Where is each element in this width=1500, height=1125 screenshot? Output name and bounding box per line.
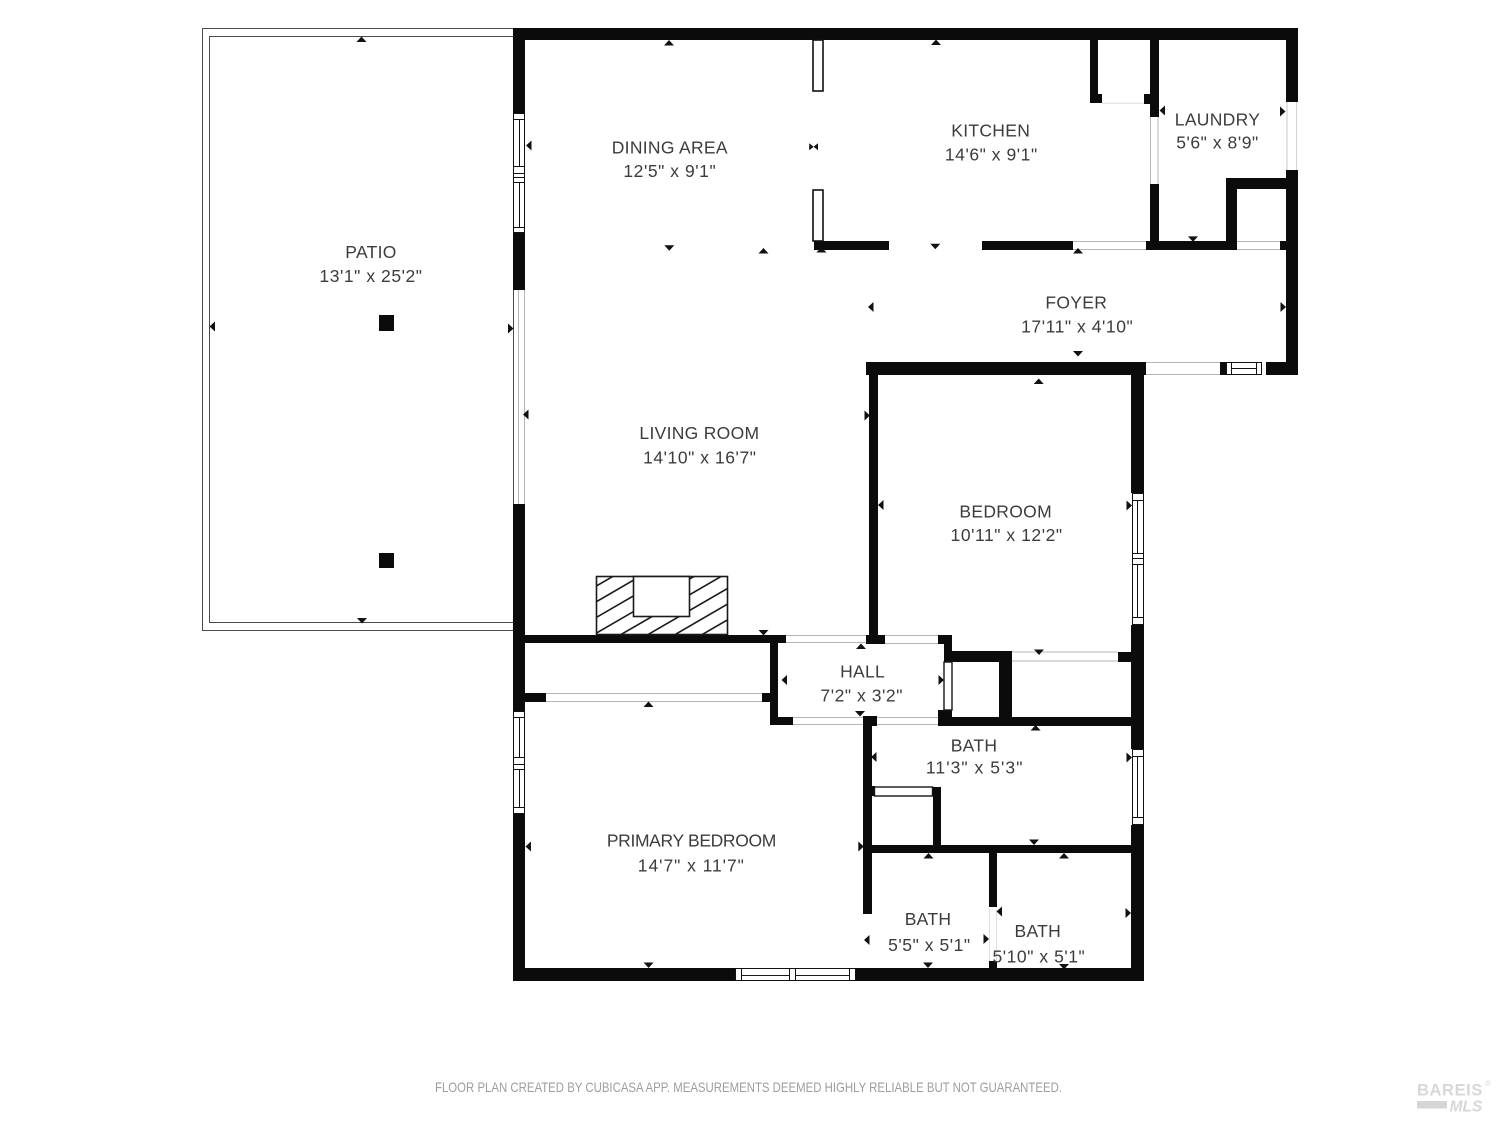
svg-text:DINING AREA: DINING AREA bbox=[612, 138, 728, 158]
svg-text:14'10" x 16'7": 14'10" x 16'7" bbox=[643, 448, 756, 468]
svg-text:HALL: HALL bbox=[840, 662, 885, 682]
svg-text:MLS: MLS bbox=[1450, 1099, 1483, 1116]
svg-text:12'5" x 9'1": 12'5" x 9'1" bbox=[623, 161, 716, 181]
svg-text:5'10" x 5'1": 5'10" x 5'1" bbox=[992, 947, 1085, 967]
svg-text:BAREIS: BAREIS bbox=[1417, 1082, 1483, 1100]
svg-text:13'1" x 25'2": 13'1" x 25'2" bbox=[319, 266, 422, 286]
svg-text:KITCHEN: KITCHEN bbox=[951, 121, 1030, 141]
svg-text:14'6" x 9'1": 14'6" x 9'1" bbox=[945, 145, 1038, 165]
svg-text:7'2" x 3'2": 7'2" x 3'2" bbox=[820, 686, 903, 706]
svg-text:14'7" x 11'7": 14'7" x 11'7" bbox=[638, 856, 745, 876]
svg-text:BATH: BATH bbox=[1015, 921, 1062, 941]
svg-text:5'6" x 8'9": 5'6" x 8'9" bbox=[1176, 133, 1259, 153]
svg-text:5'5" x 5'1": 5'5" x 5'1" bbox=[888, 935, 971, 955]
svg-text:10'11" x 12'2": 10'11" x 12'2" bbox=[951, 525, 1063, 545]
svg-text:17'11" x 4'10": 17'11" x 4'10" bbox=[1021, 316, 1133, 336]
svg-text:BATH: BATH bbox=[951, 735, 998, 755]
svg-text:BEDROOM: BEDROOM bbox=[959, 501, 1052, 521]
svg-text:®: ® bbox=[1485, 1079, 1491, 1088]
svg-text:FLOOR PLAN CREATED BY CUBICASA: FLOOR PLAN CREATED BY CUBICASA APP. MEAS… bbox=[435, 1079, 1062, 1095]
svg-text:FOYER: FOYER bbox=[1045, 292, 1107, 312]
svg-text:PRIMARY BEDROOM: PRIMARY BEDROOM bbox=[607, 831, 776, 851]
svg-text:LAUNDRY: LAUNDRY bbox=[1175, 109, 1260, 129]
svg-text:PATIO: PATIO bbox=[345, 242, 396, 262]
svg-text:BATH: BATH bbox=[905, 909, 952, 929]
svg-text:LIVING ROOM: LIVING ROOM bbox=[639, 423, 759, 443]
svg-text:11'3" x 5'3": 11'3" x 5'3" bbox=[926, 757, 1024, 777]
